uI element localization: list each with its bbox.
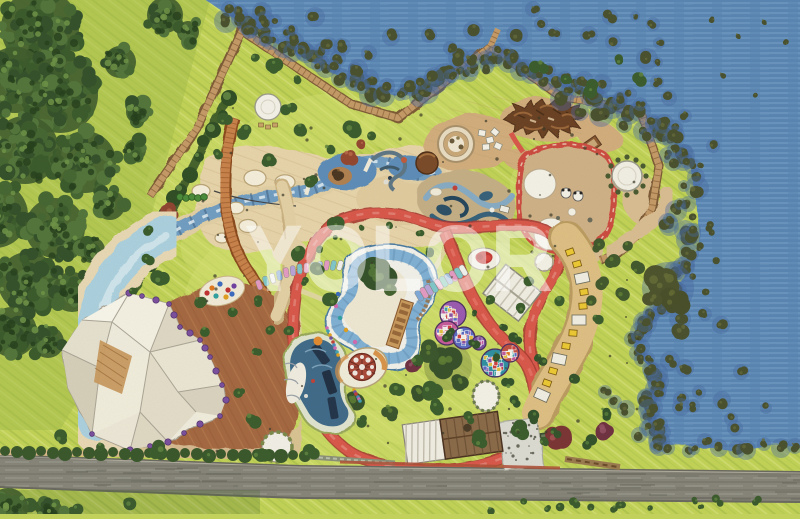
svg-text:YOLOR: YOLOR — [246, 207, 554, 310]
